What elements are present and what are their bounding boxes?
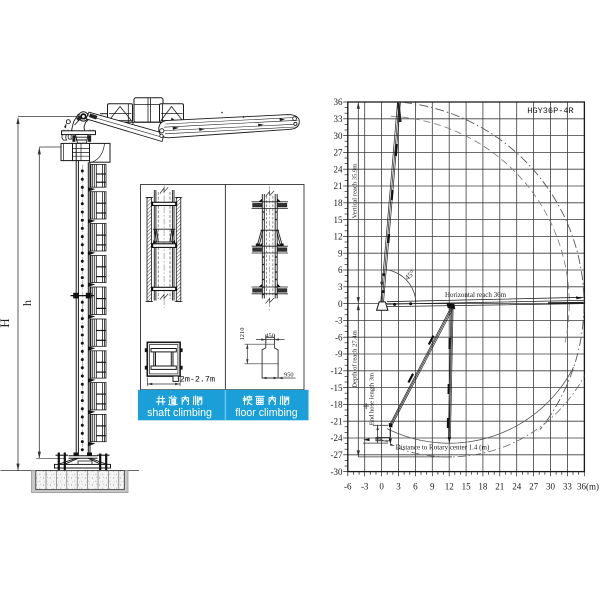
svg-text:0: 0 xyxy=(338,299,343,309)
svg-text:-15: -15 xyxy=(331,383,343,393)
svg-text:HGY36P-4R: HGY36P-4R xyxy=(527,106,573,116)
svg-text:0: 0 xyxy=(379,482,384,492)
svg-text:36(m): 36(m) xyxy=(577,482,599,492)
svg-text:24: 24 xyxy=(512,482,522,492)
svg-text:950: 950 xyxy=(284,372,294,379)
svg-text:-27: -27 xyxy=(331,450,343,460)
svg-text:-6: -6 xyxy=(335,332,343,342)
svg-text:-21: -21 xyxy=(331,416,343,426)
svg-text:30: 30 xyxy=(546,482,556,492)
svg-text:33: 33 xyxy=(563,482,573,492)
svg-text:shaft climbing: shaft climbing xyxy=(147,407,212,419)
svg-text:Vertical reach 35.9m: Vertical reach 35.9m xyxy=(351,163,358,219)
svg-text:12: 12 xyxy=(334,232,343,242)
svg-text:6: 6 xyxy=(413,482,418,492)
svg-text:15: 15 xyxy=(334,215,344,225)
svg-text:18: 18 xyxy=(334,198,344,208)
svg-text:27: 27 xyxy=(334,148,344,158)
svg-text:9: 9 xyxy=(430,482,435,492)
svg-text:21: 21 xyxy=(495,482,504,492)
svg-text:-30: -30 xyxy=(331,467,343,477)
svg-text:33: 33 xyxy=(334,114,344,124)
svg-text:1210: 1210 xyxy=(239,328,246,341)
svg-text:End hose length 3m: End hose length 3m xyxy=(368,372,375,425)
svg-text:-24: -24 xyxy=(331,433,343,443)
svg-text:27: 27 xyxy=(529,482,539,492)
svg-text:30: 30 xyxy=(334,131,344,141)
svg-text:2m-2.7m: 2m-2.7m xyxy=(180,375,215,385)
svg-text:3: 3 xyxy=(338,282,343,292)
svg-text:3: 3 xyxy=(396,482,401,492)
svg-text:12: 12 xyxy=(445,482,454,492)
svg-text:450: 450 xyxy=(265,333,275,340)
svg-text:-3: -3 xyxy=(335,316,343,326)
svg-text:Depth of reach 27.4m: Depth of reach 27.4m xyxy=(351,329,358,387)
svg-text:6: 6 xyxy=(338,265,343,275)
svg-text:-9: -9 xyxy=(335,349,343,359)
svg-text:-6: -6 xyxy=(344,482,352,492)
svg-text:36: 36 xyxy=(334,97,344,107)
svg-text:-18: -18 xyxy=(331,400,343,410)
svg-text:Distance to Rotary center 1.4: Distance to Rotary center 1.4 (m) xyxy=(396,444,490,452)
svg-text:H: H xyxy=(0,318,12,327)
svg-text:-12: -12 xyxy=(331,366,343,376)
svg-text:h: h xyxy=(20,300,34,306)
svg-text:15: 15 xyxy=(462,482,472,492)
svg-text:-3: -3 xyxy=(361,482,369,492)
svg-text:Horizontal reach 36m: Horizontal reach 36m xyxy=(445,291,507,299)
svg-text:9: 9 xyxy=(338,248,343,258)
svg-text:21: 21 xyxy=(334,181,343,191)
svg-text:18: 18 xyxy=(478,482,488,492)
svg-text:24: 24 xyxy=(334,164,344,174)
svg-text:floor climbing: floor climbing xyxy=(235,407,298,419)
